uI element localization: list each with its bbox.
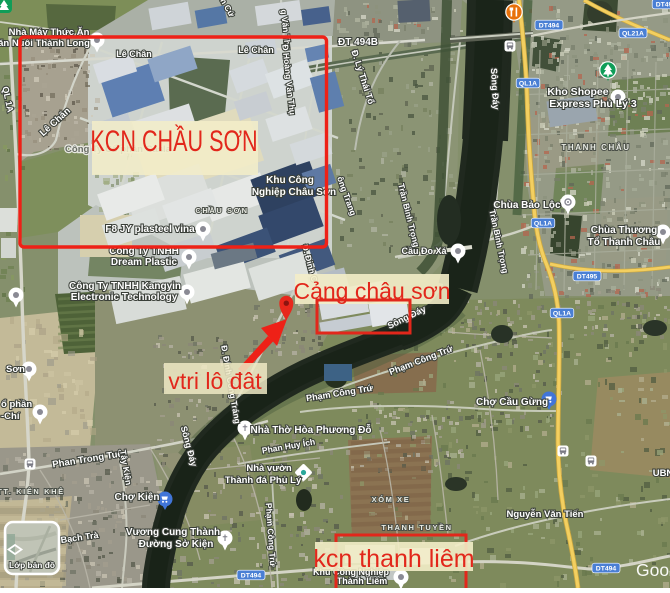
svg-text:Tổ Thanh Châu: Tổ Thanh Châu [588, 236, 661, 248]
svg-text:Electronic Technology: Electronic Technology [71, 292, 178, 303]
svg-text:THANH TUYỀN: THANH TUYỀN [381, 522, 452, 532]
svg-text:vtri lô đât: vtri lô đât [168, 368, 262, 394]
svg-text:Đường Sở Kiện: Đường Sở Kiện [139, 539, 214, 550]
svg-text:QL1A: QL1A [553, 311, 571, 318]
svg-text:KCN CHẦU SƠN: KCN CHẦU SƠN [90, 123, 257, 157]
svg-text:UBN: UBN [653, 468, 670, 479]
svg-text:Google: Google [636, 560, 670, 580]
svg-text:Chợ Cầu Gừng: Chợ Cầu Gừng [476, 396, 548, 408]
svg-text:Lê Chân: Lê Chân [238, 45, 274, 55]
svg-text:QL1A: QL1A [519, 81, 537, 88]
svg-text:Nghiệp Châu Sơn: Nghiệp Châu Sơn [252, 187, 336, 198]
svg-text:DT494: DT494 [596, 566, 617, 573]
svg-text:QL1A: QL1A [534, 221, 552, 228]
svg-text:Công Ty TNHH Kangyin: Công Ty TNHH Kangyin [69, 281, 181, 292]
svg-text:TT. KIÊN KHÊ: TT. KIÊN KHÊ [0, 487, 65, 496]
svg-text:F8 JY plasteel vina: F8 JY plasteel vina [105, 224, 195, 235]
svg-text:QL21A: QL21A [622, 31, 644, 38]
svg-text:ĐT 494B: ĐT 494B [338, 37, 378, 48]
svg-text:Chùa Bảo Lộc: Chùa Bảo Lộc [493, 200, 561, 211]
svg-text:Express Phủ Lý 3: Express Phủ Lý 3 [549, 98, 637, 110]
svg-text:CHẦU SƠN: CHẦU SƠN [195, 205, 248, 215]
svg-text:Nguyễn Văn Tiến: Nguyễn Văn Tiến [507, 509, 584, 520]
svg-text:Vương Cung Thành: Vương Cung Thành [126, 527, 220, 538]
svg-text:Nhà vườn: Nhà vườn [246, 463, 292, 474]
svg-text:✝: ✝ [241, 423, 249, 433]
svg-text:DT495: DT495 [577, 274, 598, 281]
svg-text:Thành đá Phủ Lý: Thành đá Phủ Lý [225, 475, 302, 486]
svg-text:Kho Shopee: Kho Shopee [547, 86, 608, 98]
svg-text:DT49: DT49 [656, 2, 670, 9]
svg-text:Sơn: Sơn [6, 364, 25, 375]
svg-text:XÓM XE: XÓM XE [372, 495, 411, 504]
svg-text:DT494: DT494 [241, 573, 262, 580]
svg-text:Chùa Thương: Chùa Thương [591, 225, 658, 236]
svg-text:✝: ✝ [221, 533, 229, 543]
svg-text:Thành Liêm: Thành Liêm [337, 576, 388, 586]
svg-text:Khu Công: Khu Công [266, 175, 314, 186]
svg-text:ổ phần: ổ phần [1, 399, 32, 410]
svg-text:Lớp bản đồ: Lớp bản đồ [9, 560, 55, 570]
svg-text:Chợ Kiện: Chợ Kiện [115, 492, 160, 503]
svg-text:kcn thanh liêm: kcn thanh liêm [313, 545, 474, 573]
svg-text:Lê Chân: Lê Chân [116, 49, 152, 59]
svg-text:THANH CHÂU: THANH CHÂU [561, 143, 630, 152]
svg-text:Dream Plastic: Dream Plastic [111, 257, 178, 268]
svg-text:ăn Nuôi Thành Long: ăn Nuôi Thành Long [0, 38, 90, 49]
svg-text:-Chí: -Chí [1, 411, 20, 422]
svg-text:Cầu Đo Xá: Cầu Đo Xá [401, 246, 447, 256]
svg-text:DT494: DT494 [539, 23, 560, 30]
svg-text:Nhà Thờ Hòa Phương Đỗ: Nhà Thờ Hòa Phương Đỗ [251, 423, 372, 436]
